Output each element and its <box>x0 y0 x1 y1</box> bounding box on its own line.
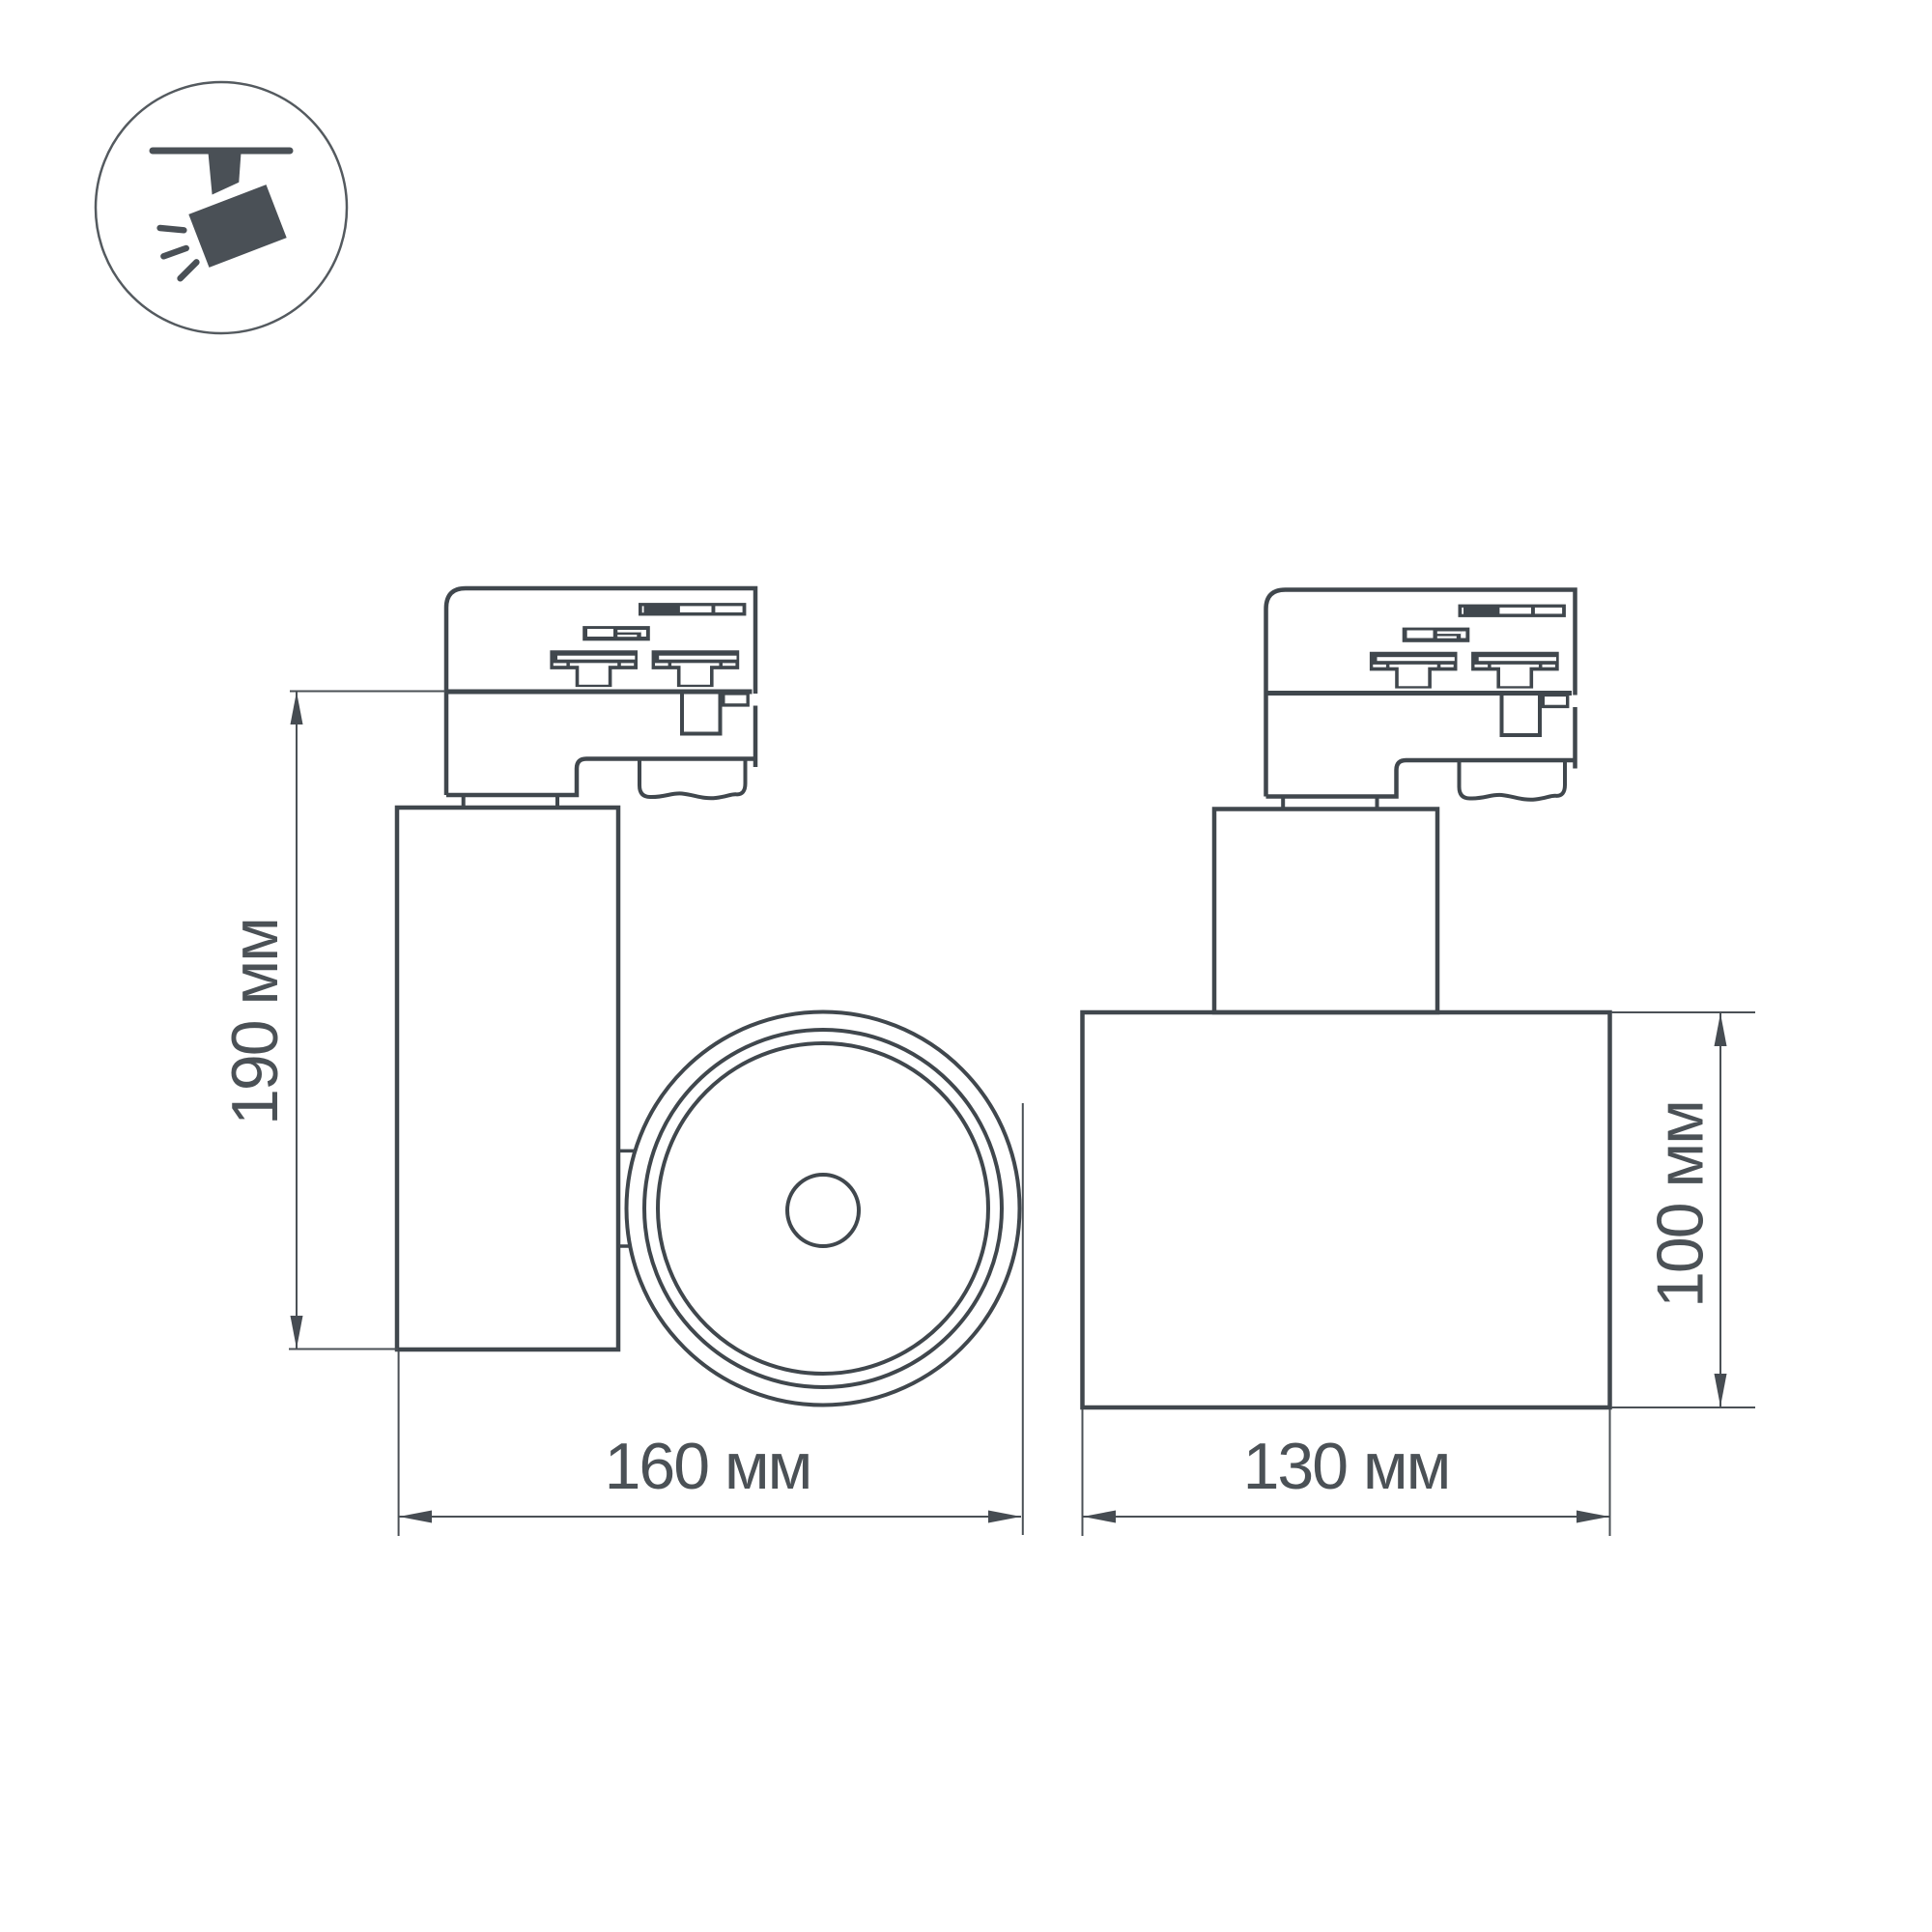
svg-text:160 мм: 160 мм <box>605 1430 811 1503</box>
svg-text:130 мм: 130 мм <box>1243 1430 1450 1503</box>
svg-text:190 мм: 190 мм <box>218 919 292 1125</box>
svg-text:100 мм: 100 мм <box>1644 1101 1718 1308</box>
